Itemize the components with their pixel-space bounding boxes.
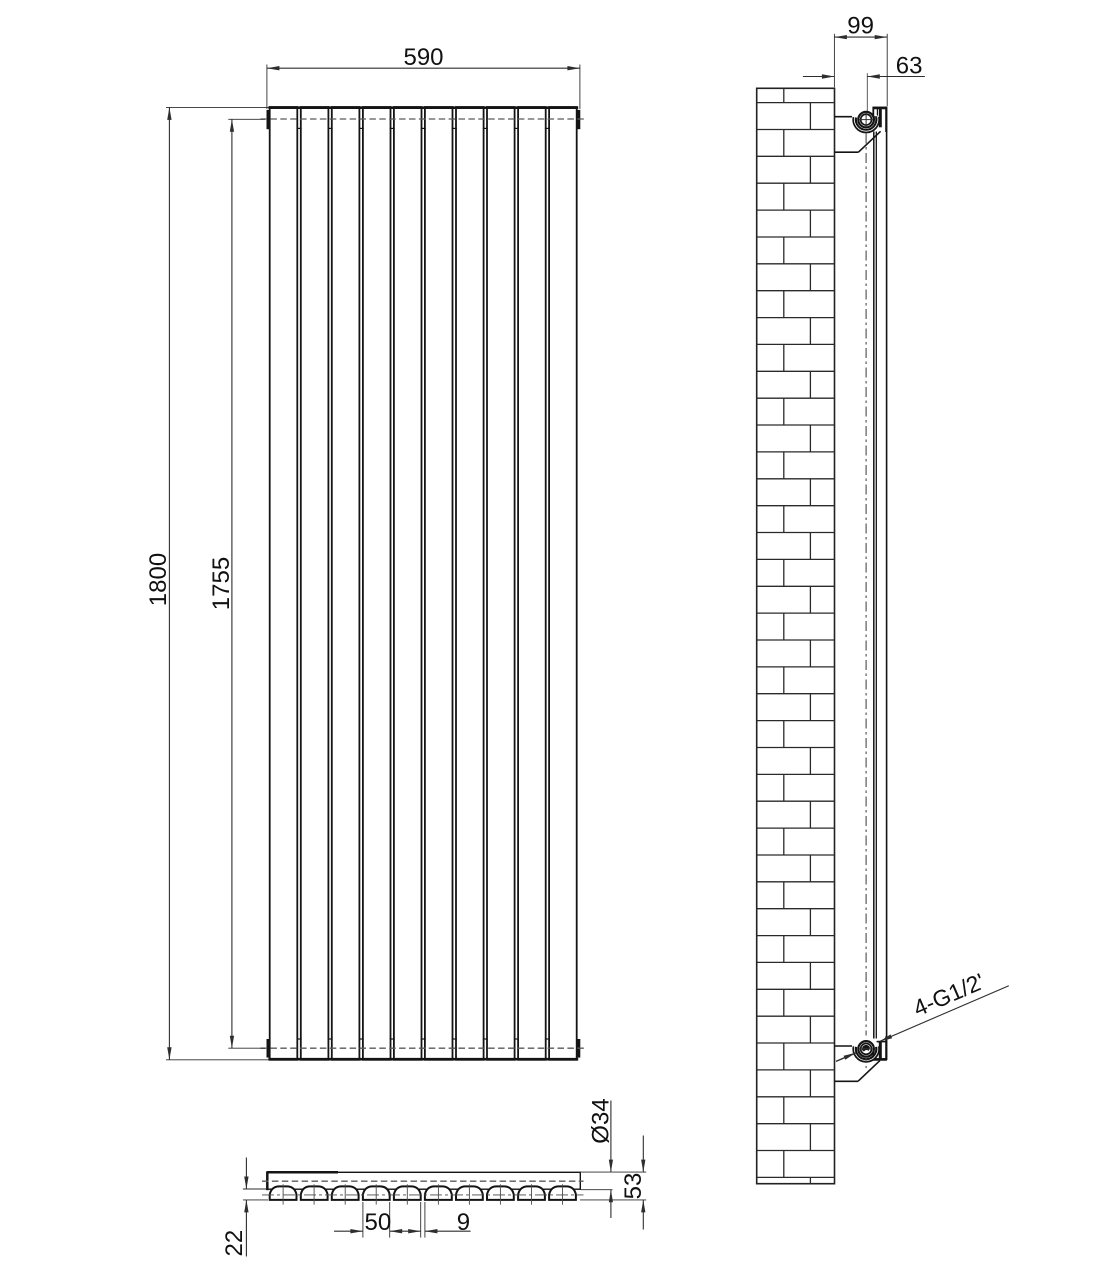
svg-text:590: 590 [403, 44, 443, 71]
svg-text:99: 99 [847, 13, 874, 40]
svg-text:9: 9 [457, 1209, 470, 1236]
svg-text:53: 53 [620, 1173, 647, 1200]
svg-text:63: 63 [896, 53, 923, 80]
svg-text:50: 50 [365, 1209, 392, 1236]
svg-text:Ø34: Ø34 [588, 1098, 615, 1143]
svg-text:22: 22 [221, 1230, 248, 1257]
svg-text:1800: 1800 [145, 553, 172, 606]
svg-text:1755: 1755 [208, 557, 235, 610]
